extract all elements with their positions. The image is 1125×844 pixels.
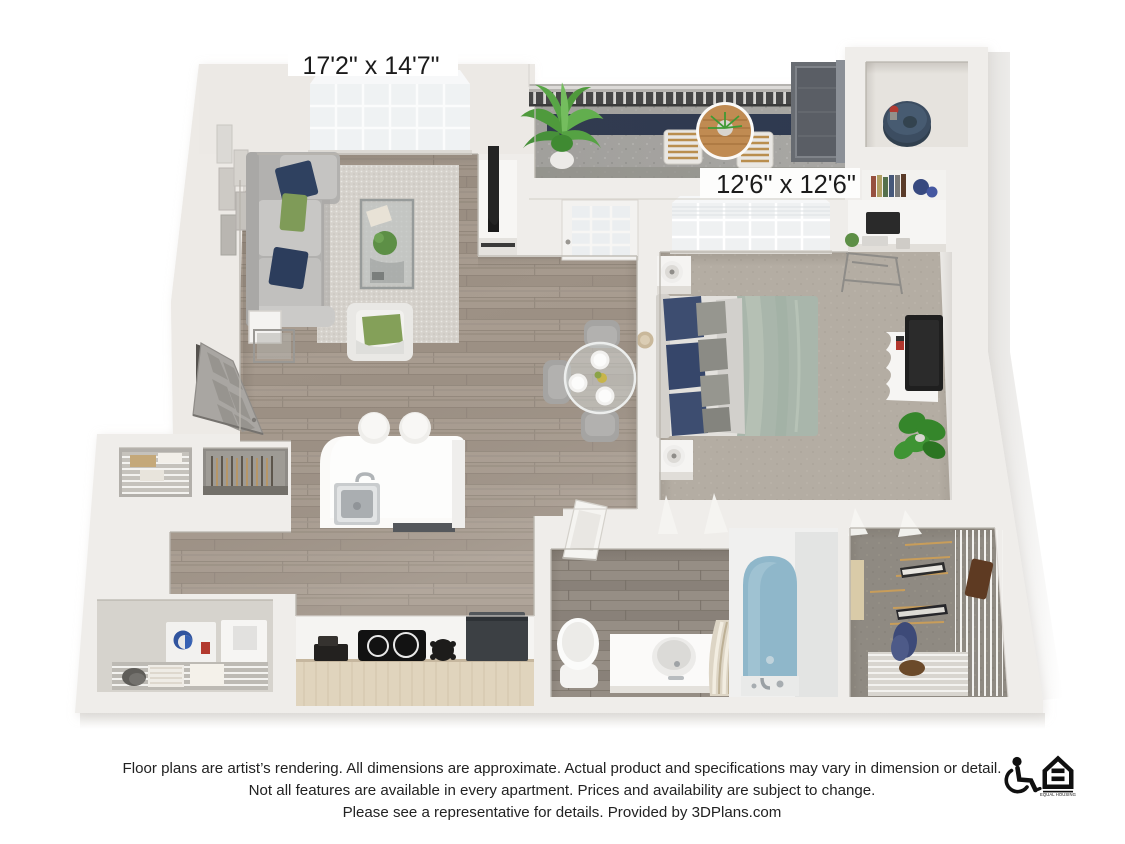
svg-text:12'6" x 12'6": 12'6" x 12'6" (716, 171, 856, 199)
svg-text:Please see a representative fo: Please see a representative for details.… (343, 804, 782, 821)
svg-text:EQUAL HOUSING: EQUAL HOUSING (1040, 792, 1076, 797)
svg-text:Not all features are available: Not all features are available in every … (249, 782, 876, 799)
svg-text:Floor plans are artist’s rende: Floor plans are artist’s rendering. All … (123, 760, 1002, 777)
svg-text:17'2" x 14'7": 17'2" x 14'7" (302, 52, 439, 80)
